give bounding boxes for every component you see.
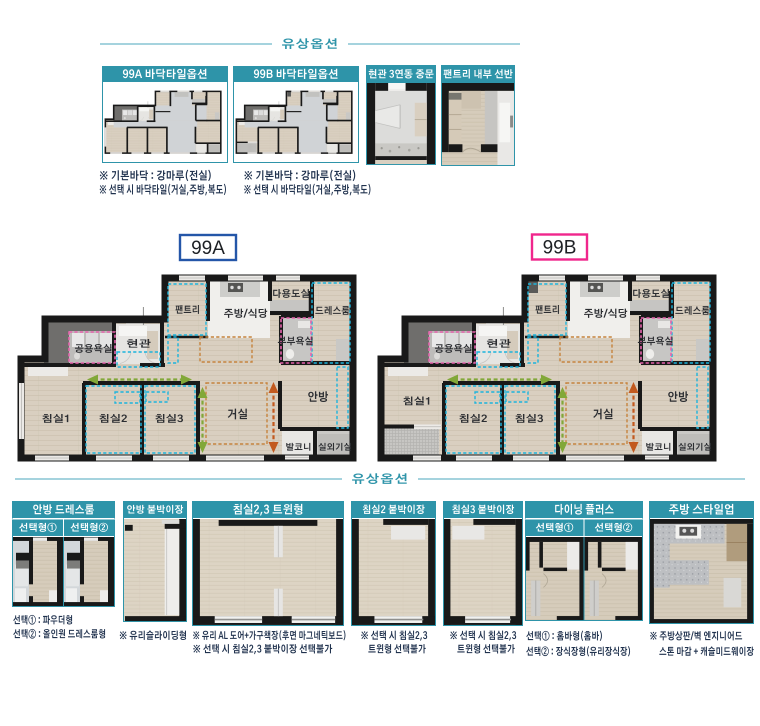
svg-text:99B: 99B bbox=[543, 238, 577, 259]
svg-text:99A: 99A bbox=[191, 238, 225, 259]
